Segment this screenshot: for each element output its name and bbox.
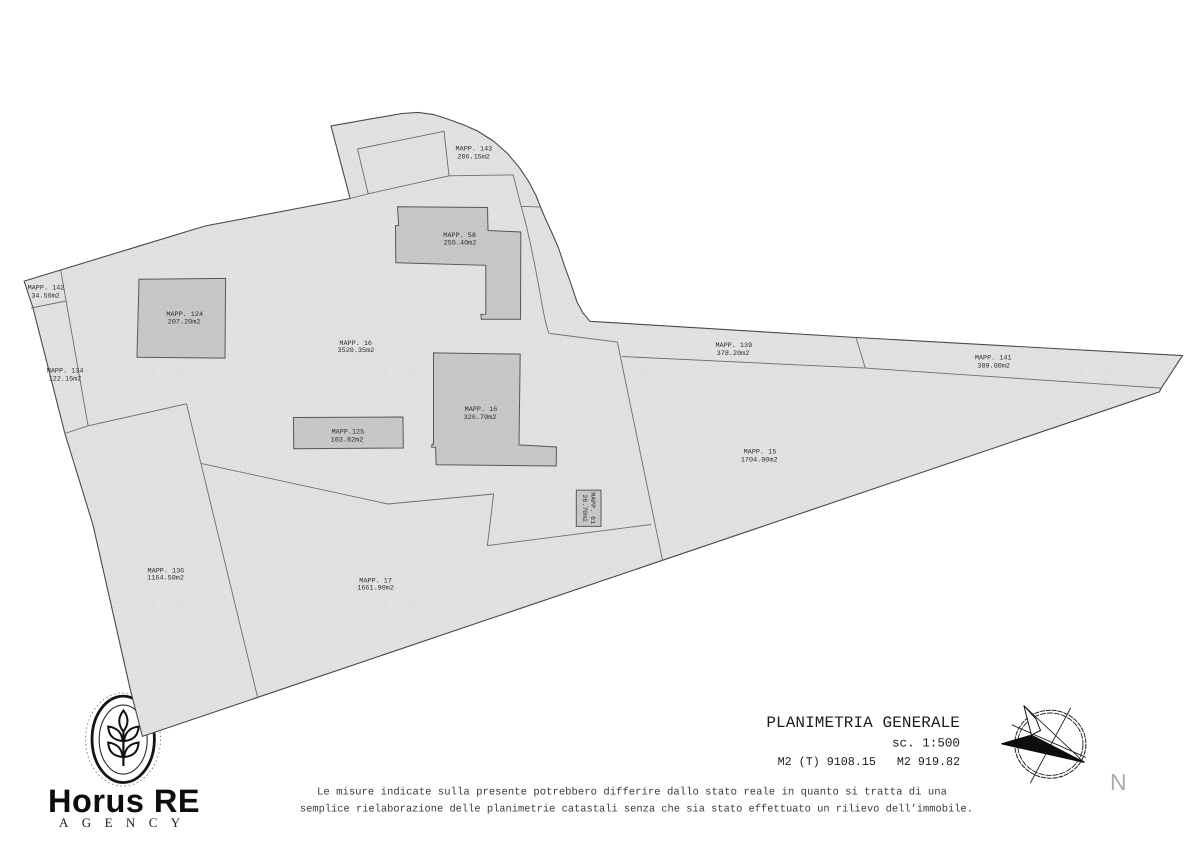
- svg-text:309.00m2: 309.00m2: [977, 362, 1010, 370]
- svg-text:PLANIMETRIA GENERALE: PLANIMETRIA GENERALE: [766, 714, 960, 732]
- svg-text:1164.50m2: 1164.50m2: [147, 574, 184, 582]
- svg-text:Horus RE: Horus RE: [48, 783, 200, 819]
- svg-text:326.70m2: 326.70m2: [464, 414, 497, 422]
- svg-text:207.20m2: 207.20m2: [168, 318, 201, 326]
- svg-text:MAPP.125: MAPP.125: [332, 429, 365, 437]
- svg-text:MAPP. 61: MAPP. 61: [589, 492, 596, 524]
- svg-text:206.15m2: 206.15m2: [457, 153, 490, 161]
- svg-text:255.40m2: 255.40m2: [444, 240, 477, 248]
- svg-text:AGENCY: AGENCY: [59, 815, 194, 830]
- svg-text:MAPP. 16: MAPP. 16: [465, 406, 498, 414]
- svg-text:3520.35m2: 3520.35m2: [338, 347, 375, 355]
- svg-text:MAPP. 142: MAPP. 142: [28, 284, 65, 292]
- svg-text:Le misure indicate sulla prese: Le misure indicate sulla presente potreb…: [317, 786, 948, 798]
- svg-text:MAPP. 143: MAPP. 143: [456, 146, 493, 154]
- svg-text:378.20m2: 378.20m2: [717, 350, 750, 358]
- svg-text:semplice rielaborazione delle: semplice rielaborazione delle planimetri…: [300, 803, 973, 815]
- svg-text:N: N: [1110, 769, 1127, 795]
- svg-text:122.15m2: 122.15m2: [49, 375, 82, 383]
- svg-text:103.82m2: 103.82m2: [331, 437, 364, 445]
- svg-text:MAPP. 139: MAPP. 139: [715, 342, 752, 350]
- svg-text:sc. 1:500: sc. 1:500: [892, 737, 960, 751]
- svg-text:1704.00m2: 1704.00m2: [741, 457, 778, 465]
- svg-text:M2 (T) 9108.15 M2 919.82: M2 (T) 9108.15 M2 919.82: [778, 755, 960, 769]
- svg-text:26.70m2: 26.70m2: [581, 494, 588, 522]
- svg-text:MAPP. 15: MAPP. 15: [744, 449, 777, 457]
- svg-text:34.50m2: 34.50m2: [31, 293, 60, 301]
- svg-text:1661.90m2: 1661.90m2: [357, 585, 394, 593]
